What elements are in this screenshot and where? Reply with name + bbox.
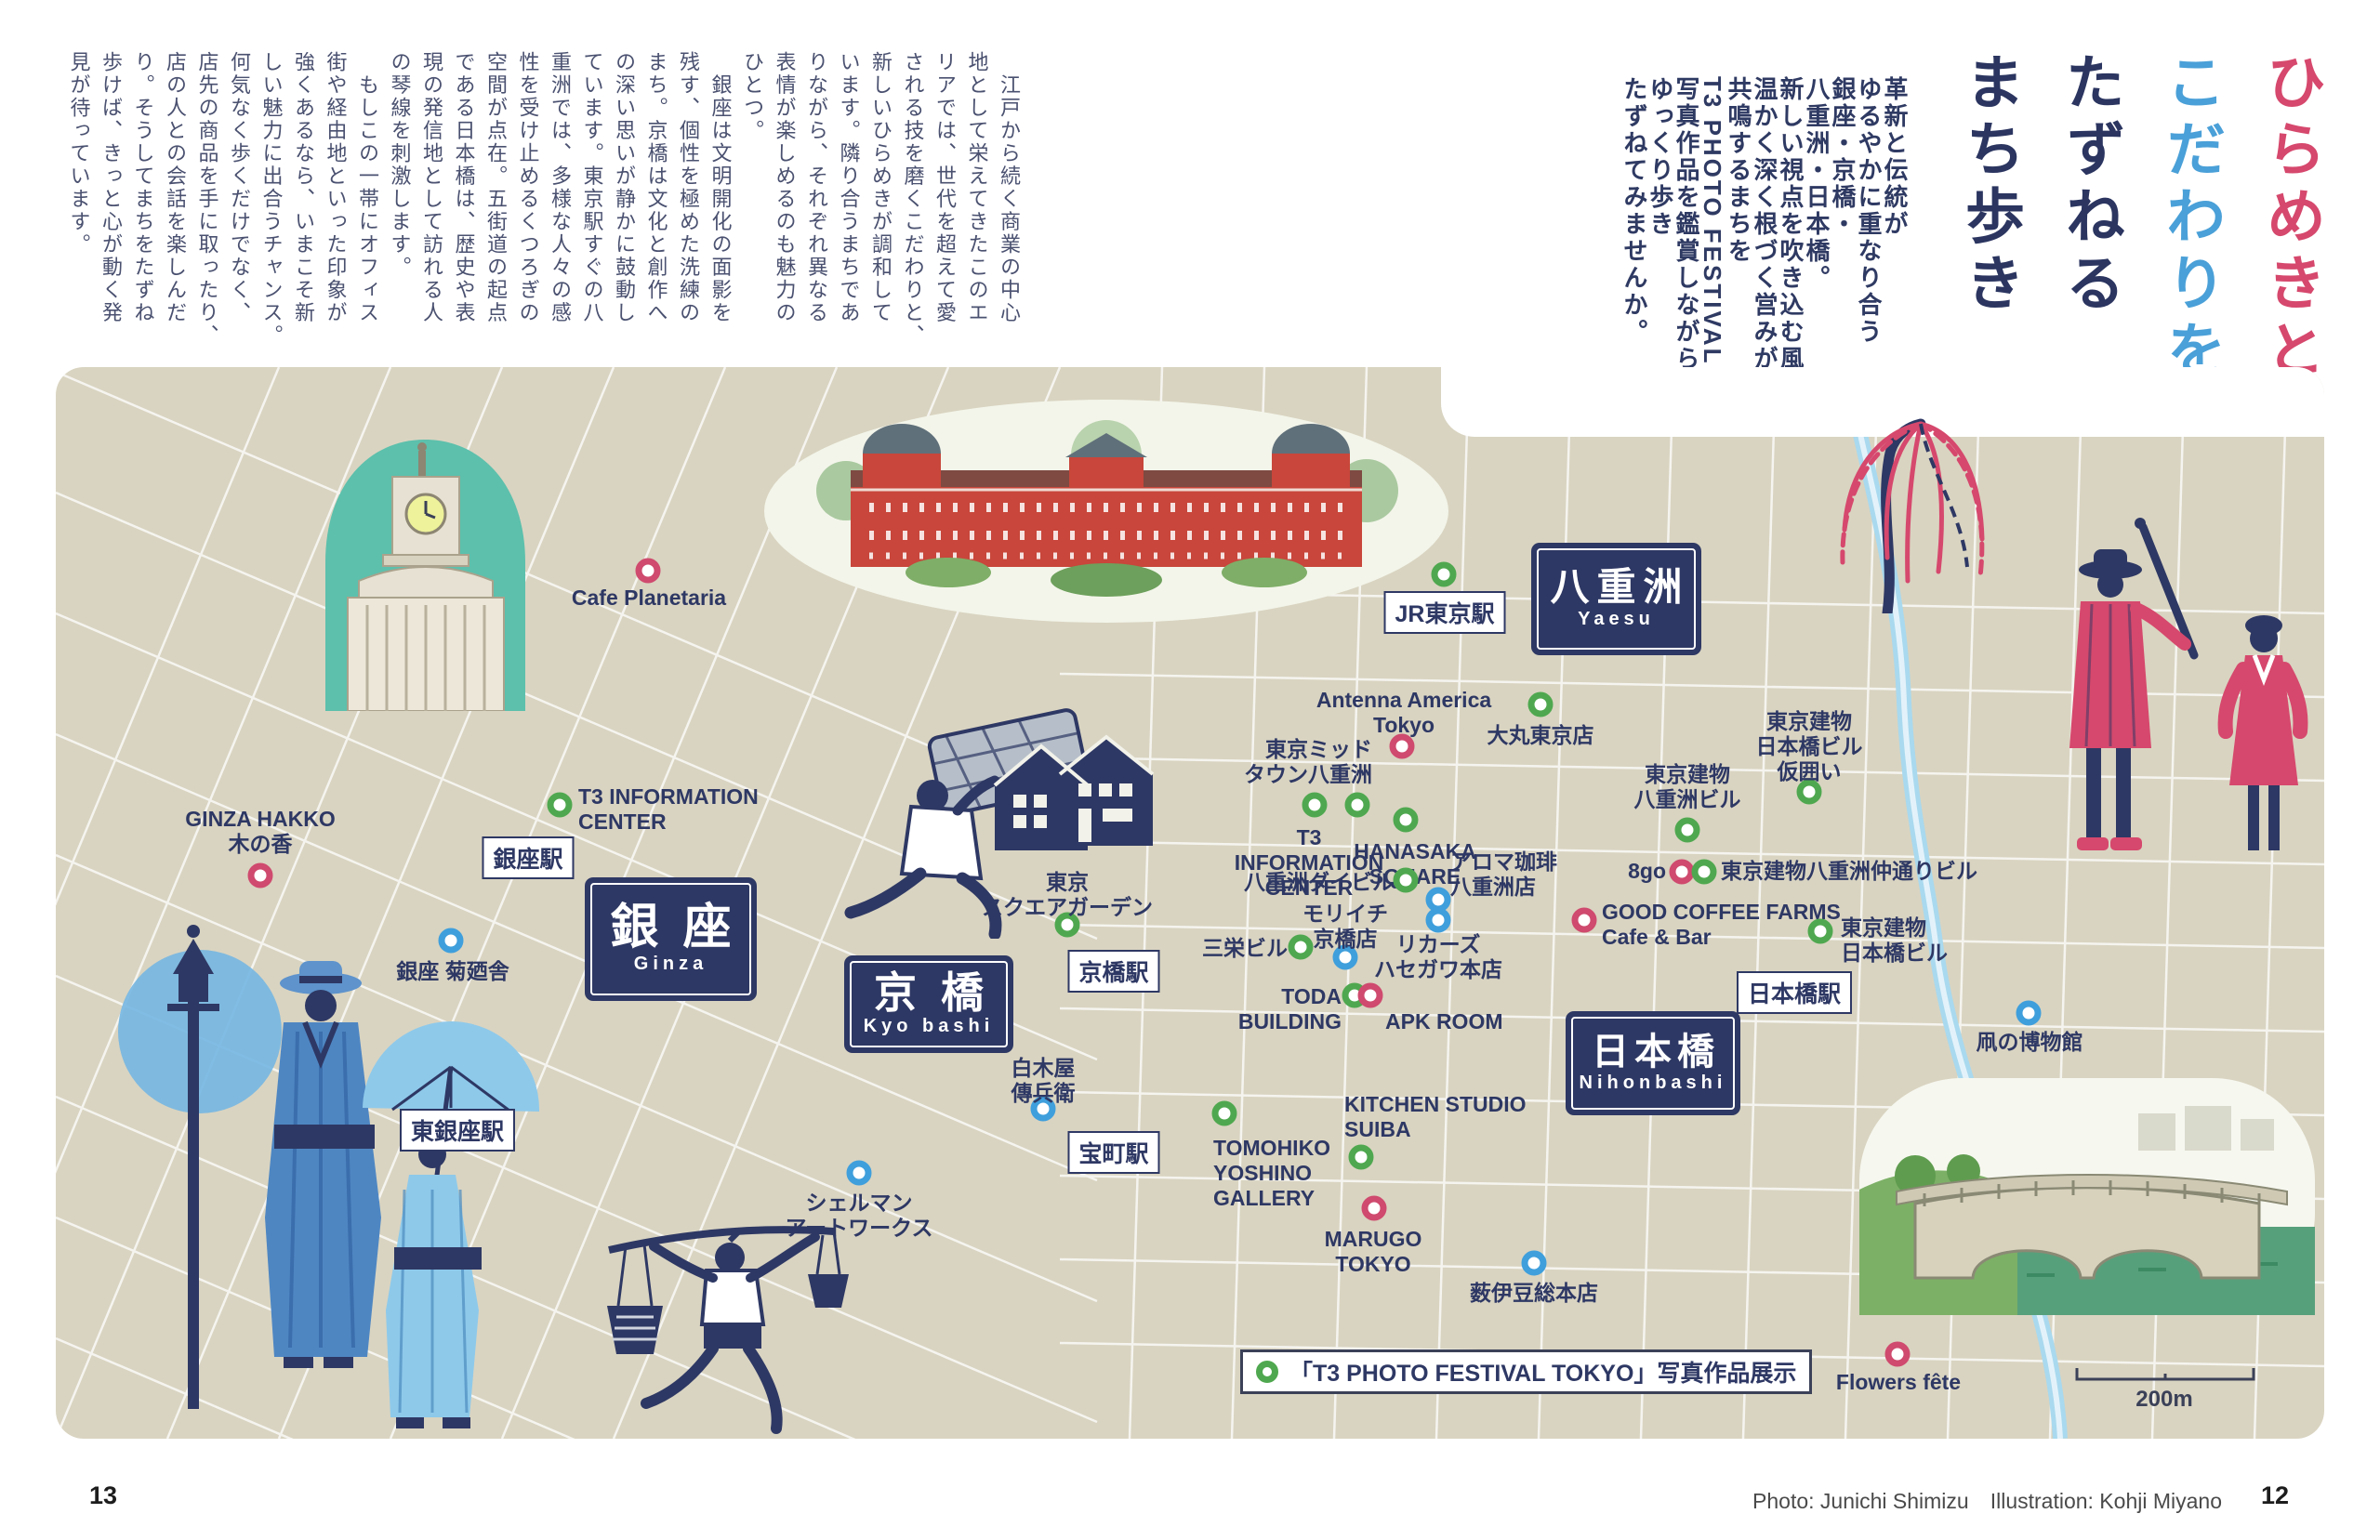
eight-go-label: 8go	[1628, 859, 1666, 884]
tokyo-tatemono-yaesu-nakadori-building-marker	[1692, 860, 1717, 885]
title-column-2: こだわりを	[2162, 51, 2221, 386]
ginza-kikunoya-label: 銀座 菊廼舎	[396, 959, 509, 984]
good-coffee-farms-marker	[1572, 908, 1597, 933]
article-body: 江戸から続く商業の中心 地として栄えてきたこのエ リアでは、世代を超えて愛 され…	[62, 51, 1025, 348]
tako-no-hakubutsukan-label: 凧の博物館	[1977, 1030, 2083, 1055]
cafe-planetaria-label: Cafe Planetaria	[572, 586, 726, 611]
map-legend: 「T3 PHOTO FESTIVAL TOKYO」写真作品展示	[1240, 1349, 1812, 1394]
tokyo-tatemono-nihonbashi-building-label: 東京建物 日本橋ビル	[1841, 915, 1948, 966]
ginza-kikunoya-marker	[439, 928, 464, 954]
yaesu-daibiru-label: 八重洲ダイビル	[1244, 870, 1394, 895]
yaesu-daibiru-marker	[1394, 868, 1419, 893]
sanei-building-label: 三栄ビル	[1202, 936, 1288, 961]
flowers-fete-marker	[1885, 1342, 1911, 1367]
left-page-number: 13	[89, 1481, 117, 1510]
title-column-1: ひらめきと	[2262, 51, 2321, 386]
yabuizu-sohonten-marker	[1522, 1251, 1547, 1276]
tokyo-midtown-yaesu-marker	[1345, 793, 1370, 818]
aroma-coffee-yaesu-label: アロマ珈琲 八重洲店	[1450, 849, 1557, 900]
illustrated-map: 銀座Ginza京橋Kyo bashi八重洲Yaesu日本橋Nihonbashi …	[56, 367, 2324, 1439]
title-column-4: まち歩き	[1961, 51, 2020, 319]
liquors-hasegawa-honten-label: リカーズ ハセガワ本店	[1374, 932, 1502, 982]
tokyo-tatemono-nihonbashi-karigakoi-label: 東京建物 日本橋ビル 仮囲い	[1756, 709, 1863, 784]
cafe-planetaria-marker	[636, 559, 661, 584]
ginza-hakko-label: GINZA HAKKO 木の香	[185, 807, 335, 857]
marugo-tokyo-marker	[1362, 1196, 1387, 1221]
t3-information-center-ginza-label: T3 INFORMATION CENTER	[578, 784, 759, 835]
toda-building-label: TODA BUILDING	[1238, 984, 1342, 1034]
flowers-fete-label: Flowers fête	[1836, 1370, 1961, 1395]
yabuizu-sohonten-label: 薮伊豆総本店	[1470, 1281, 1598, 1306]
tokyo-tatemono-yaesu-building-marker	[1675, 818, 1700, 843]
shirakiya-denbei-label: 白木屋 傳兵衛	[1011, 1056, 1076, 1106]
liquors-hasegawa-honten-marker	[1426, 908, 1451, 933]
sanei-building-marker	[1289, 935, 1314, 960]
title-column-3: たずねる	[2061, 51, 2121, 319]
tako-no-hakubutsukan-marker	[2016, 1001, 2042, 1026]
kitchen-studio-suiba-label: KITCHEN STUDIO SUIBA	[1344, 1092, 1527, 1142]
marugo-tokyo-label: MARUGO TOKYO	[1325, 1227, 1422, 1277]
tomohiko-yoshino-gallery-marker	[1212, 1101, 1237, 1126]
moriichi-kyobashi-label: モリイチ 京橋店	[1302, 902, 1388, 952]
antenna-america-tokyo-label: Antenna America Tokyo	[1316, 688, 1491, 738]
eight-go-marker	[1670, 860, 1695, 885]
tokyo-tatemono-nihonbashi-building-marker	[1808, 919, 1833, 944]
tokyo-midtown-yaesu-label: 東京ミッド タウン八重洲	[1244, 737, 1372, 787]
tokyo-tatemono-yaesu-building-label: 東京建物 八重洲ビル	[1634, 762, 1741, 812]
t3-information-center-yaesu-marker	[1302, 793, 1328, 818]
legend-green-marker-icon	[1256, 1361, 1278, 1383]
tokyo-tatemono-yaesu-nakadori-building-label: 東京建物八重洲仲通りビル	[1721, 859, 1977, 884]
apk-room-label: APK ROOM	[1385, 1009, 1503, 1034]
t3-information-center-ginza-marker	[548, 793, 573, 818]
shellman-artworks-marker	[847, 1161, 872, 1186]
credits: Photo: Junichi Shimizu Illustration: Koh…	[1752, 1483, 2222, 1515]
good-coffee-farms-label: GOOD COFFEE FARMS Cafe & Bar	[1602, 900, 1841, 950]
magazine-spread: ひらめきとこだわりをたずねるまち歩き 革新と伝統が ゆるやかに重なり合う 銀座・…	[0, 0, 2380, 1540]
poi-markers: GINZA HAKKO 木の香Cafe PlanetariaT3 INFORMA…	[56, 367, 2324, 1439]
apk-room-marker	[1358, 983, 1383, 1008]
kitchen-studio-suiba-marker	[1349, 1145, 1374, 1170]
tomohiko-yoshino-gallery-label: TOMOHIKO YOSHINO GALLERY	[1213, 1136, 1330, 1211]
right-page-number: 12	[2261, 1481, 2289, 1510]
daimaru-tokyo-label: 大丸東京店	[1487, 723, 1594, 748]
scale-label: 200m	[2135, 1387, 2192, 1413]
hanasaka-square-marker	[1394, 808, 1419, 833]
shellman-artworks-label: シェルマン アートワークス	[786, 1191, 933, 1241]
ginza-hakko-marker	[248, 863, 273, 888]
daimaru-tokyo-marker	[1528, 692, 1554, 717]
legend-text: 「T3 PHOTO FESTIVAL TOKYO」写真作品展示	[1289, 1355, 1796, 1389]
tokyo-square-garden-label: 東京 スクエアガーデン	[982, 870, 1153, 920]
